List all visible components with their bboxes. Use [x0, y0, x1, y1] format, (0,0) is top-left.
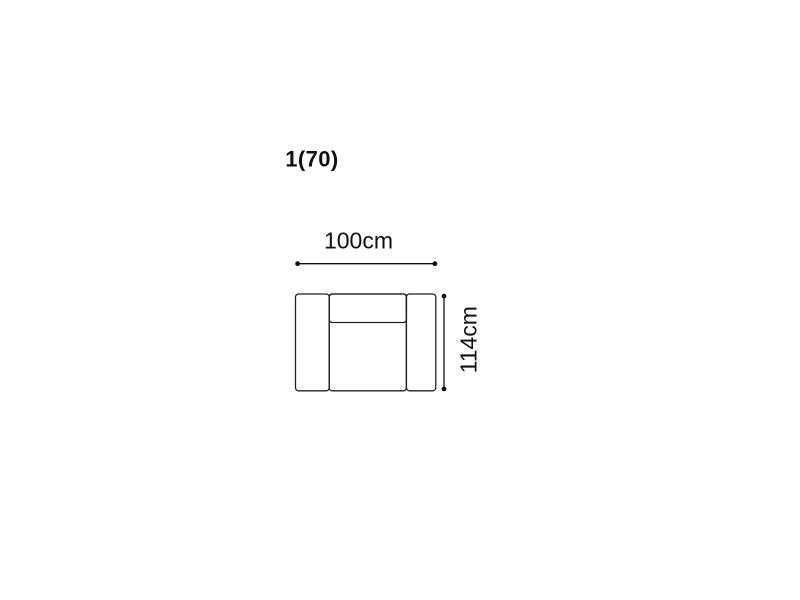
svg-text:1(70): 1(70)	[285, 147, 338, 172]
svg-text:100cm: 100cm	[324, 228, 393, 254]
svg-text:114cm: 114cm	[456, 306, 482, 373]
